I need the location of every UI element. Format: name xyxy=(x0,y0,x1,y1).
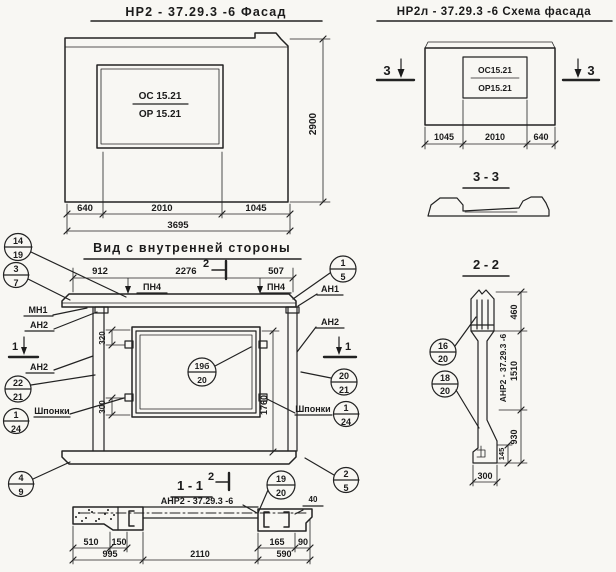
facade-dim-2010: 2010 xyxy=(151,203,172,214)
schema-title: НР2л - 37.29.3 -6 Схема фасада xyxy=(397,6,592,18)
inner-section-mark-1-left: 1 xyxy=(12,341,18,353)
section-2-2-dim-460: 460 xyxy=(509,304,519,319)
section-1-1-title: 1 - 1 xyxy=(177,478,203,493)
section-arrow-icon xyxy=(398,69,405,78)
facade-window-opening xyxy=(97,65,223,148)
facade-dim-height: 2900 xyxy=(308,112,319,135)
facade-title: НР2 - 37.29.3 -6 Фасад xyxy=(125,5,286,19)
schema-window-mark-top: ОС15.21 xyxy=(478,65,512,75)
callout-1-24-right-numerator: 1 xyxy=(343,403,348,413)
schema-view: НР2л - 37.29.3 -6 Схема фасада ОС15.21 О… xyxy=(377,6,612,149)
callout-14-19-numerator: 14 xyxy=(13,236,23,246)
inner-label-an2-right: АН2 xyxy=(321,317,339,327)
section-1-1: 1 - 1 2 АНР2 - 37.29.3 -6 19 20 40 51 xyxy=(70,471,323,564)
inner-dim-2276: 2276 xyxy=(175,266,196,277)
inner-view: Вид с внутренней стороны 2 912 2276 507 … xyxy=(4,234,360,498)
schema-window-mark-bottom: ОР15.21 xyxy=(478,83,512,93)
facade-dim-640: 640 xyxy=(77,203,93,214)
section-2-2-top-flange xyxy=(471,290,494,299)
schema-section-mark-left: 3 xyxy=(383,63,390,78)
inner-dim-300: 300 xyxy=(98,400,107,414)
callout-16-20-numerator: 16 xyxy=(438,341,448,351)
inner-dim-1760: 1760 xyxy=(259,395,269,415)
inner-label-mn1: МН1 xyxy=(28,305,47,315)
drawing-canvas: НР2 - 37.29.3 -6 Фасад ОС 15.21 ОР 15.21… xyxy=(0,0,616,572)
inner-panel-top-bar xyxy=(62,294,296,307)
callout-3-7-denominator: 7 xyxy=(13,278,18,288)
inner-label-shponki-right: Шпонки xyxy=(295,404,330,414)
inner-section-mark-1-right: 1 xyxy=(345,341,351,353)
callout-18-20-denominator: 20 xyxy=(440,386,450,396)
section-1-1-mark-2: 2 xyxy=(208,471,214,483)
callout-22-21-numerator: 22 xyxy=(13,378,23,388)
section-3-3-profile xyxy=(428,197,549,216)
callout-19b-20-denominator: 20 xyxy=(197,375,207,385)
inner-dim-507: 507 xyxy=(268,266,284,277)
callout-4-9-denominator: 9 xyxy=(18,487,23,497)
concrete-hatch-dots xyxy=(75,509,115,522)
section-1-1-dim-150: 150 xyxy=(111,537,126,547)
facade-window-mark-top: ОС 15.21 xyxy=(139,91,182,102)
callout-19-20-numerator: 19 xyxy=(276,474,286,484)
callout-1-5-denominator: 5 xyxy=(340,272,345,282)
inner-panel-bottom-bar xyxy=(62,451,296,464)
section-1-1-dim-165: 165 xyxy=(269,537,284,547)
section-1-1-dim-90: 90 xyxy=(298,537,308,547)
callout-1-24-left-denominator: 24 xyxy=(11,424,21,434)
inner-label-pn4-left: ПН4 xyxy=(143,282,161,292)
callout-1-24-left-numerator: 1 xyxy=(13,410,18,420)
inner-section-mark-2: 2 xyxy=(203,258,209,270)
callout-20-21-numerator: 20 xyxy=(339,371,349,381)
schema-dim-1045: 1045 xyxy=(434,132,454,142)
rebar-anchor-icon xyxy=(264,512,289,527)
section-arrow-icon xyxy=(575,69,582,78)
callout-14-19-denominator: 19 xyxy=(13,250,23,260)
callout-4-9-numerator: 4 xyxy=(18,473,23,483)
inner-label-an2-left: АН2 xyxy=(30,362,48,372)
facade-window-mark-bottom: ОР 15.21 xyxy=(139,109,182,120)
inner-label-pn4-right: ПН4 xyxy=(267,282,285,292)
inner-dim-320: 320 xyxy=(98,331,107,345)
section-3-3: 3 - 3 xyxy=(428,169,549,216)
callout-3-7-numerator: 3 xyxy=(13,264,18,274)
section-2-2-web xyxy=(471,331,497,448)
section-3-3-title: 3 - 3 xyxy=(473,169,499,184)
section-2-2-dim-300: 300 xyxy=(477,471,492,481)
callout-1-5-numerator: 1 xyxy=(340,258,345,268)
inner-label-shponki-left: Шпонки xyxy=(34,406,69,416)
facade-dim-1045: 1045 xyxy=(245,203,267,214)
rebar-anchor-icon xyxy=(129,511,134,526)
schema-dim-640: 640 xyxy=(533,132,548,142)
section-1-1-marking-label: АНР2 - 37.29.3 -6 xyxy=(161,496,234,506)
callout-19b-20-numerator: 19б xyxy=(195,361,210,371)
callout-22-21-denominator: 21 xyxy=(13,392,23,402)
section-2-2-dim-145: 145 xyxy=(497,448,506,461)
callout-18-20-numerator: 18 xyxy=(440,373,450,383)
callout-2-5-numerator: 2 xyxy=(343,469,348,479)
inner-label-an2-top-left: АН2 xyxy=(30,320,48,330)
inner-dim-912: 912 xyxy=(92,266,108,277)
schema-dim-2010: 2010 xyxy=(485,132,505,142)
drawing-sheet: НР2 - 37.29.3 -6 Фасад ОС 15.21 ОР 15.21… xyxy=(0,0,616,572)
callout-20-21-denominator: 21 xyxy=(339,385,349,395)
callout-2-5-denominator: 5 xyxy=(343,483,348,493)
section-1-1-dim-590: 590 xyxy=(276,549,291,559)
section-1-1-dim-995: 995 xyxy=(102,549,117,559)
inner-label-an1-right: АН1 xyxy=(321,284,339,294)
callout-1-24-right-denominator: 24 xyxy=(341,417,351,427)
inner-view-title: Вид с внутренней стороны xyxy=(93,241,291,255)
section-1-1-dim-2110: 2110 xyxy=(190,549,210,559)
section-1-1-dim-40: 40 xyxy=(309,495,318,504)
facade-view: НР2 - 37.29.3 -6 Фасад ОС 15.21 ОР 15.21… xyxy=(64,5,330,234)
callout-16-20-denominator: 20 xyxy=(438,354,448,364)
section-2-2: 2 - 2 16 20 18 20 АНР2 - 37.29.3 -6 460 … xyxy=(430,257,527,486)
facade-dim-total: 3695 xyxy=(167,220,189,231)
callout-19-20-denominator: 20 xyxy=(276,488,286,498)
schema-section-mark-right: 3 xyxy=(587,63,594,78)
section-1-1-dim-510: 510 xyxy=(83,537,98,547)
section-1-1-strip xyxy=(143,507,258,518)
section-2-2-marking-label: АНР2 - 37.29.3 -6 xyxy=(498,333,508,402)
inner-panel-ribs xyxy=(93,307,297,451)
section-2-2-title: 2 - 2 xyxy=(473,257,499,272)
section-2-2-dim-1510: 1510 xyxy=(509,361,519,381)
